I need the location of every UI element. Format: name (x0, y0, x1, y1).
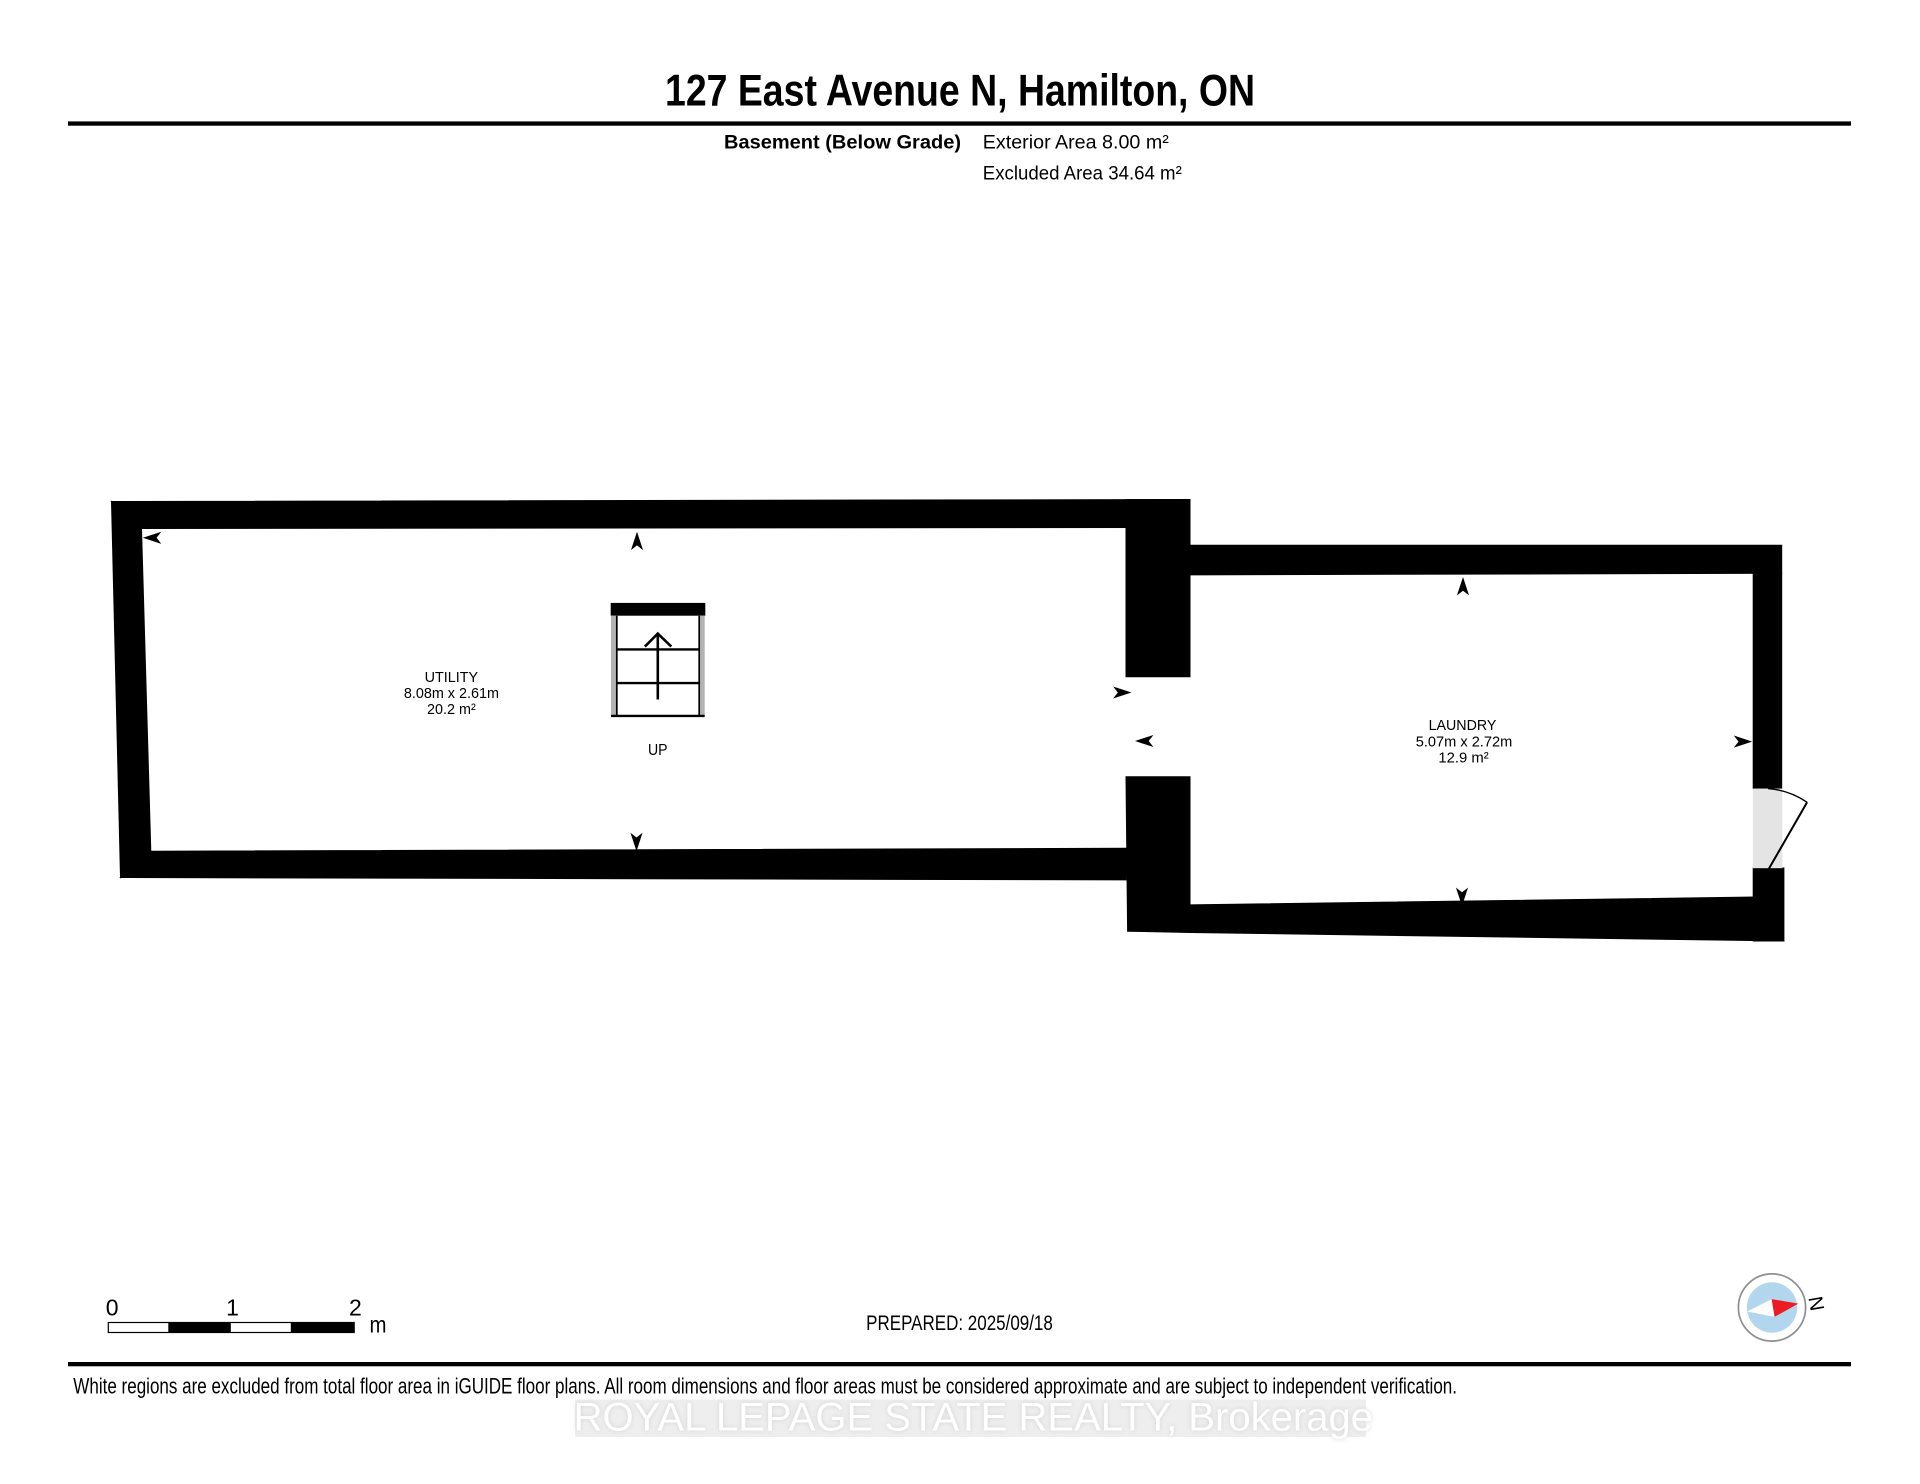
svg-text:8.08m x 2.61m: 8.08m x 2.61m (404, 685, 499, 702)
svg-text:5.07m x 2.72m: 5.07m x 2.72m (1416, 733, 1513, 750)
svg-text:12.9 m²: 12.9 m² (1438, 749, 1488, 766)
svg-text:Basement (Below Grade): Basement (Below Grade) (724, 131, 961, 153)
svg-text:Exterior Area 8.00 m²: Exterior Area 8.00 m² (983, 131, 1170, 153)
svg-text:0: 0 (106, 1295, 119, 1321)
svg-text:UP: UP (648, 742, 668, 759)
svg-text:1: 1 (226, 1295, 239, 1321)
svg-text:PREPARED: 2025/09/18: PREPARED: 2025/09/18 (866, 1311, 1053, 1335)
svg-text:2: 2 (349, 1295, 362, 1321)
svg-text:UTILITY: UTILITY (425, 669, 479, 686)
svg-text:m: m (370, 1312, 387, 1338)
svg-text:LAUNDRY: LAUNDRY (1429, 717, 1497, 734)
svg-text:20.2 m²: 20.2 m² (427, 701, 476, 718)
svg-text:Excluded Area 34.64 m²: Excluded Area 34.64 m² (983, 162, 1182, 184)
svg-text:127 East Avenue N, Hamilton, O: 127 East Avenue N, Hamilton, ON (665, 67, 1255, 116)
svg-text:ROYAL LEPAGE STATE REALTY, Bro: ROYAL LEPAGE STATE REALTY, Brokerage (574, 1395, 1373, 1439)
